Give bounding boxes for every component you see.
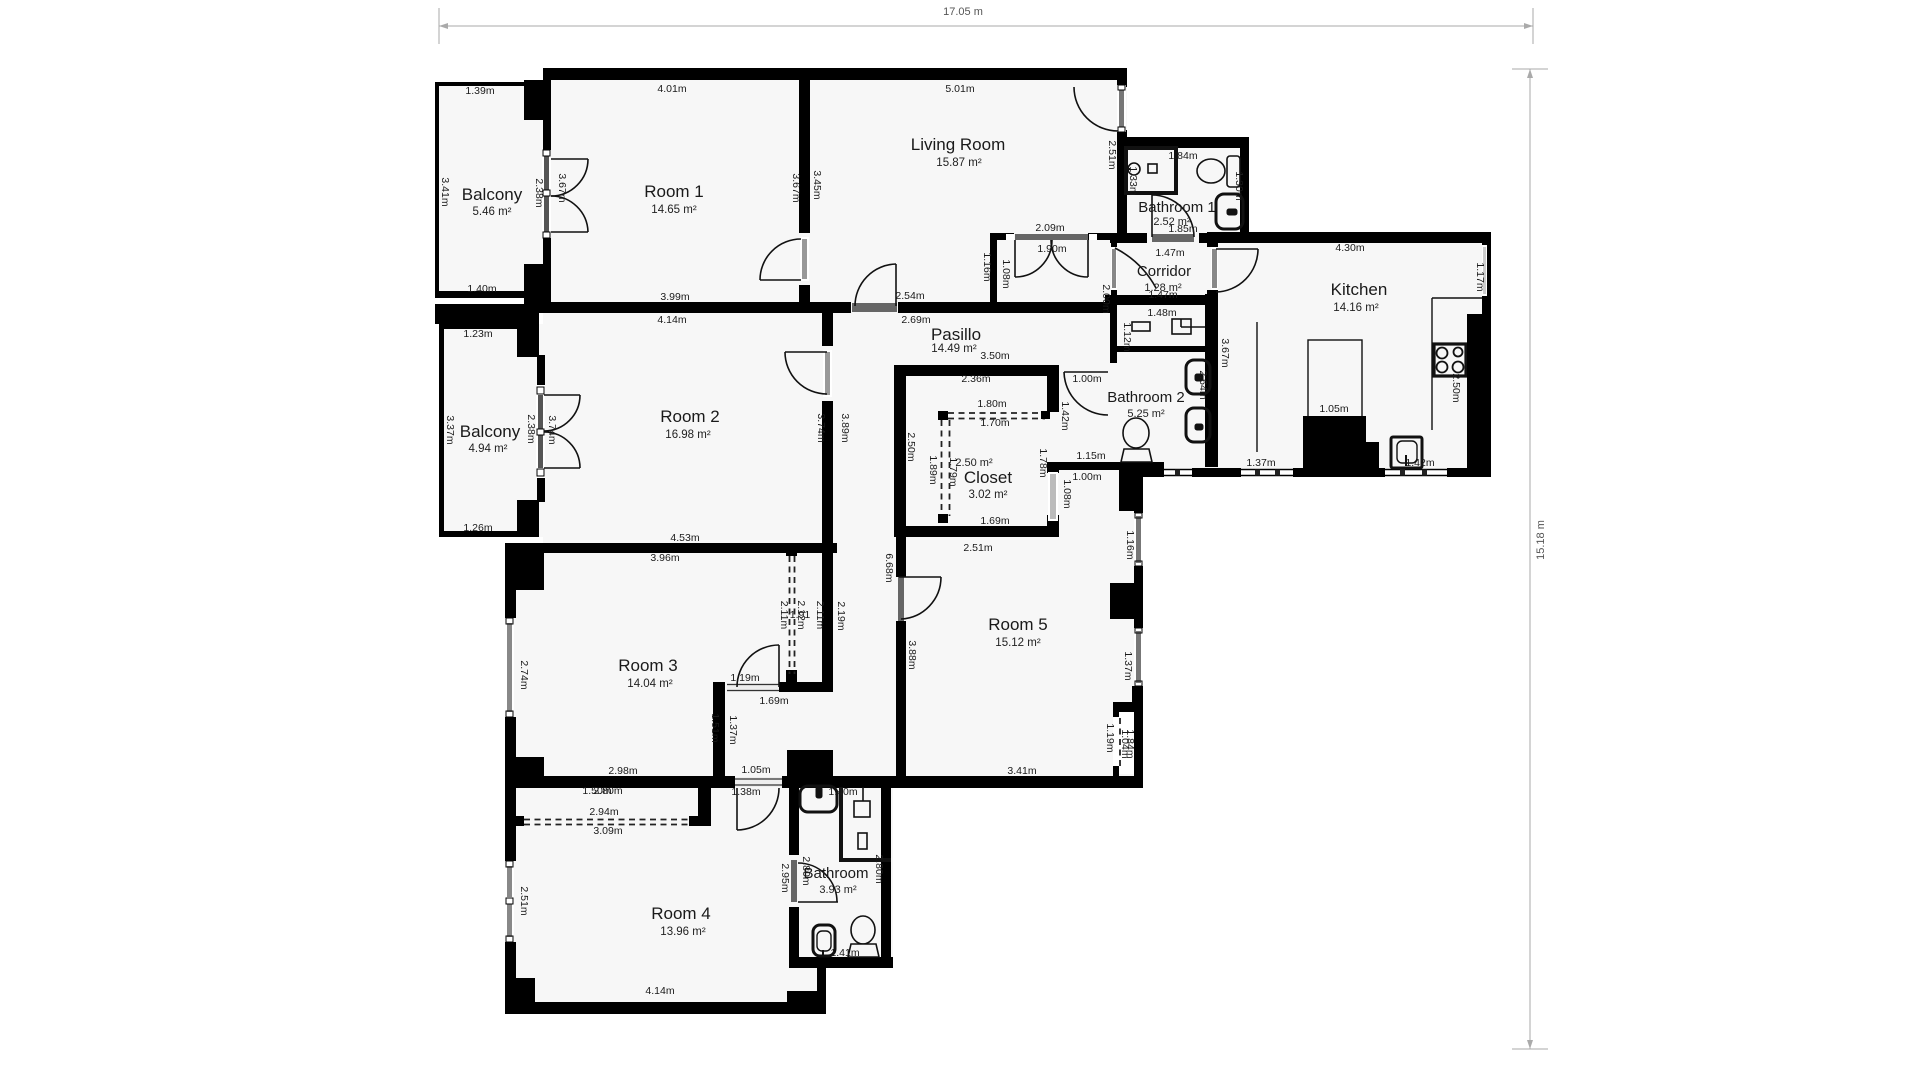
svg-text:1.38m: 1.38m	[731, 786, 760, 798]
svg-text:2.36m: 2.36m	[961, 373, 990, 385]
svg-text:1.47m: 1.47m	[1155, 247, 1184, 259]
svg-text:1.37m: 1.37m	[1246, 457, 1275, 469]
svg-text:2.38m: 2.38m	[533, 178, 545, 207]
svg-text:2.64m: 2.64m	[1197, 370, 1209, 399]
svg-text:Corridor: Corridor	[1137, 263, 1191, 280]
svg-text:1.16m: 1.16m	[981, 252, 993, 281]
svg-text:14.49 m²: 14.49 m²	[931, 343, 977, 355]
svg-text:3.99m: 3.99m	[660, 291, 689, 303]
svg-text:5.25 m²: 5.25 m²	[1127, 408, 1165, 420]
svg-text:Bathroom: Bathroom	[803, 865, 868, 882]
svg-text:1.42m: 1.42m	[1405, 457, 1434, 469]
svg-text:1.00m: 1.00m	[1072, 373, 1101, 385]
svg-text:3.88m: 3.88m	[906, 640, 918, 669]
svg-text:2.51m: 2.51m	[963, 542, 992, 554]
svg-text:3.93 m²: 3.93 m²	[819, 884, 857, 896]
svg-text:2.94m: 2.94m	[589, 806, 618, 818]
svg-text:2.54m: 2.54m	[895, 290, 924, 302]
svg-text:3.67m: 3.67m	[556, 173, 568, 202]
svg-text:2.09m: 2.09m	[1035, 222, 1064, 234]
svg-text:3.67m: 3.67m	[790, 173, 802, 202]
svg-text:17.05 m: 17.05 m	[943, 6, 983, 18]
svg-text:Closet: Closet	[964, 468, 1012, 487]
svg-text:1.26m: 1.26m	[463, 522, 492, 534]
svg-text:2.11m: 2.11m	[814, 601, 826, 630]
svg-text:1.19m: 1.19m	[730, 672, 759, 684]
svg-text:5.46 m²: 5.46 m²	[473, 206, 512, 218]
svg-text:1.78m: 1.78m	[1037, 448, 1049, 477]
svg-text:1.00m: 1.00m	[1072, 471, 1101, 483]
svg-text:6.68m: 6.68m	[883, 553, 895, 582]
svg-text:1.05m: 1.05m	[741, 764, 770, 776]
svg-text:1.84m: 1.84m	[1124, 729, 1136, 758]
svg-text:2.50m: 2.50m	[905, 432, 917, 461]
svg-text:1.19m: 1.19m	[1104, 723, 1116, 752]
svg-text:1.05m: 1.05m	[1319, 403, 1348, 415]
svg-text:1.15m: 1.15m	[1076, 450, 1105, 462]
svg-text:1.40m: 1.40m	[828, 786, 857, 798]
svg-text:Pasillo: Pasillo	[931, 325, 981, 344]
svg-text:2.51m: 2.51m	[1106, 140, 1118, 169]
svg-text:3.74m: 3.74m	[815, 413, 827, 442]
svg-text:Living Room: Living Room	[911, 135, 1006, 154]
svg-text:2.74m: 2.74m	[518, 660, 530, 689]
svg-text:13.96 m²: 13.96 m²	[660, 926, 706, 938]
svg-text:Room 3: Room 3	[618, 656, 678, 675]
svg-text:2.69m: 2.69m	[901, 314, 930, 326]
svg-text:Bathroom 2: Bathroom 2	[1107, 389, 1185, 406]
svg-text:14.04 m²: 14.04 m²	[627, 678, 673, 690]
svg-text:1.23m: 1.23m	[463, 328, 492, 340]
svg-text:15.12 m²: 15.12 m²	[995, 637, 1041, 649]
svg-text:1.90m: 1.90m	[1037, 243, 1066, 255]
svg-text:Bathroom 1: Bathroom 1	[1138, 199, 1216, 216]
svg-text:2.80m: 2.80m	[800, 856, 812, 885]
svg-text:Room 5: Room 5	[988, 615, 1048, 634]
svg-text:2.38m: 2.38m	[525, 414, 537, 443]
svg-text:1.08m: 1.08m	[1061, 479, 1073, 508]
svg-text:Balcony: Balcony	[462, 185, 523, 204]
svg-text:3.50m: 3.50m	[980, 350, 1009, 362]
svg-text:1.17m: 1.17m	[1474, 262, 1486, 291]
svg-text:Room 2: Room 2	[660, 407, 720, 426]
svg-text:1.48m: 1.48m	[1147, 307, 1176, 319]
svg-text:4.53m: 4.53m	[670, 532, 699, 544]
svg-text:1.08m: 1.08m	[1000, 259, 1012, 288]
svg-text:3.09m: 3.09m	[593, 825, 622, 837]
svg-text:4.14m: 4.14m	[657, 314, 686, 326]
svg-text:2.11m: 2.11m	[778, 601, 790, 630]
svg-text:1.69m: 1.69m	[980, 515, 1009, 527]
svg-text:3.74m: 3.74m	[546, 415, 558, 444]
svg-text:1.70m: 1.70m	[980, 417, 1009, 429]
svg-text:1.79m: 1.79m	[947, 457, 959, 486]
svg-text:2.51m: 2.51m	[518, 886, 530, 915]
svg-text:14.16 m²: 14.16 m²	[1333, 302, 1379, 314]
svg-text:1.85m: 1.85m	[1168, 223, 1197, 235]
svg-text:3.41m: 3.41m	[1007, 765, 1036, 777]
svg-text:Room 4: Room 4	[651, 904, 711, 923]
svg-text:1.51m: 1.51m	[709, 713, 721, 742]
svg-text:3.02 m²: 3.02 m²	[969, 489, 1008, 501]
svg-text:2.80m: 2.80m	[593, 785, 622, 797]
svg-text:1.39m: 1.39m	[465, 85, 494, 97]
svg-text:1.47m: 1.47m	[1148, 289, 1177, 301]
svg-text:1.69m: 1.69m	[759, 695, 788, 707]
svg-text:1.41m: 1.41m	[830, 947, 859, 959]
svg-text:1.89m: 1.89m	[927, 455, 939, 484]
svg-text:2.00m: 2.00m	[1100, 284, 1112, 313]
svg-text:1.42m: 1.42m	[1059, 401, 1071, 430]
svg-text:2.80m: 2.80m	[873, 854, 885, 883]
svg-text:2.95m: 2.95m	[779, 863, 791, 892]
svg-text:3.96m: 3.96m	[650, 552, 679, 564]
svg-text:1.40m: 1.40m	[467, 283, 496, 295]
svg-text:3.37m: 3.37m	[444, 415, 456, 444]
svg-text:4.94 m²: 4.94 m²	[469, 443, 508, 455]
svg-text:4.30m: 4.30m	[1335, 242, 1364, 254]
svg-text:16.98 m²: 16.98 m²	[665, 429, 711, 441]
svg-text:1.12m: 1.12m	[1121, 322, 1133, 351]
svg-text:1.30m: 1.30m	[1233, 171, 1245, 200]
svg-text:Kitchen: Kitchen	[1331, 280, 1388, 299]
svg-text:1.80m: 1.80m	[977, 398, 1006, 410]
svg-text:15.18 m: 15.18 m	[1535, 520, 1547, 560]
svg-text:1.16m: 1.16m	[1124, 530, 1136, 559]
svg-text:1.37m: 1.37m	[727, 715, 739, 744]
svg-text:1.84m: 1.84m	[1168, 150, 1197, 162]
svg-text:1.37m: 1.37m	[1122, 651, 1134, 680]
svg-text:Balcony: Balcony	[460, 422, 521, 441]
svg-text:14.65 m²: 14.65 m²	[651, 204, 697, 216]
svg-text:1.33m: 1.33m	[1127, 166, 1139, 195]
svg-text:3.41m: 3.41m	[439, 177, 451, 206]
svg-text:2.50m: 2.50m	[1450, 373, 1462, 402]
svg-text:15.87 m²: 15.87 m²	[936, 157, 982, 169]
svg-text:3.67m: 3.67m	[1219, 338, 1231, 367]
svg-text:1.91: 1.91	[790, 609, 811, 621]
svg-text:3.89m: 3.89m	[839, 413, 851, 442]
svg-text:Room 1: Room 1	[644, 182, 704, 201]
svg-text:3.45m: 3.45m	[811, 170, 823, 199]
svg-text:2.19m: 2.19m	[835, 601, 847, 630]
svg-text:2.98m: 2.98m	[608, 765, 637, 777]
svg-text:4.14m: 4.14m	[645, 985, 674, 997]
svg-text:4.01m: 4.01m	[657, 83, 686, 95]
svg-text:5.01m: 5.01m	[945, 83, 974, 95]
